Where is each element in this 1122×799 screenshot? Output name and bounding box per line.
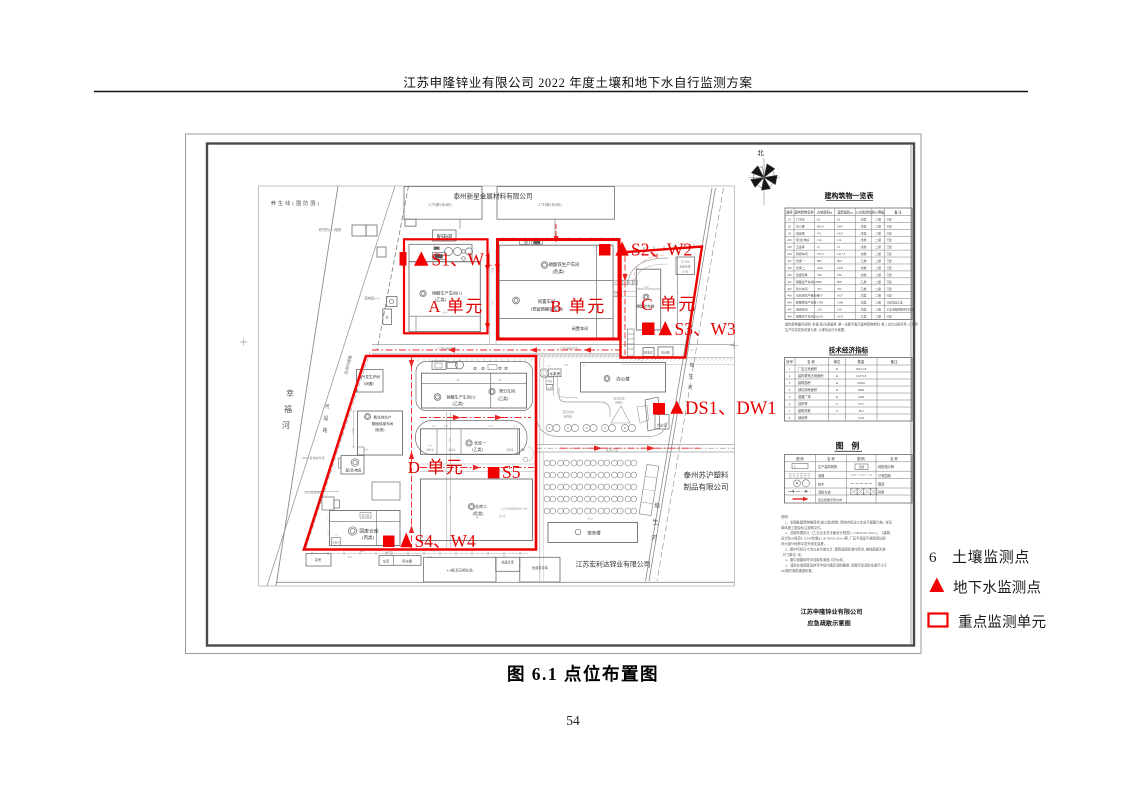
svg-text:1057: 1057 — [837, 294, 844, 298]
svg-text:单体施工图及标注说明文件。: 单体施工图及标注说明文件。 — [781, 525, 824, 530]
svg-text:4.4幢(现五期车间): 4.4幢(现五期车间) — [447, 568, 474, 573]
svg-text:配(变)电房: 配(变)电房 — [346, 468, 362, 473]
svg-text:(危类): (危类) — [375, 427, 385, 432]
svg-text:车库: 车库 — [383, 559, 390, 564]
svg-text:802.4: 802.4 — [817, 224, 824, 228]
svg-text:已建: 已建 — [887, 231, 893, 235]
svg-text:河: 河 — [651, 534, 657, 542]
svg-text:数量: 数量 — [858, 359, 865, 364]
svg-text:建构筑物占地面积: 建构筑物占地面积 — [798, 373, 824, 378]
svg-text:江苏申隆锌业有限公司: 江苏申隆锌业有限公司 — [801, 608, 863, 616]
svg-text:图 例: 图 例 — [836, 441, 863, 451]
svg-text:二级: 二级 — [875, 244, 881, 249]
svg-text:泰州新星金属材料有限公司: 泰州新星金属材料有限公司 — [453, 192, 532, 201]
svg-text:%: % — [836, 402, 839, 406]
svg-text:202: 202 — [787, 238, 792, 242]
svg-text:硝酸生产车间(1): 硝酸生产车间(1) — [432, 290, 463, 297]
svg-text:(乙类): (乙类) — [453, 400, 464, 406]
svg-text:耐火等级: 耐火等级 — [872, 210, 886, 215]
svg-text:114: 114 — [837, 238, 842, 242]
svg-text:辅料: 辅料 — [521, 448, 526, 452]
svg-text:已建: 已建 — [887, 273, 893, 277]
svg-text:占地面积m: 占地面积m — [817, 210, 833, 215]
svg-text:周转库: 周转库 — [506, 448, 514, 452]
svg-text:S4、W4: S4、W4 — [415, 531, 476, 551]
svg-text:福: 福 — [284, 405, 292, 414]
svg-text:960: 960 — [837, 259, 842, 263]
svg-text:2800: 2800 — [858, 388, 865, 392]
svg-text:402: 402 — [787, 287, 792, 291]
svg-text:戊类: 戊类 — [860, 244, 866, 249]
svg-text:32.7: 32.7 — [489, 425, 494, 428]
svg-text:图 6.1 点位布置图: 图 6.1 点位布置图 — [507, 664, 659, 684]
svg-text:磷酸铁生产车间: 磷酸铁生产车间 — [549, 261, 580, 268]
svg-text:B 单元: B 单元 — [550, 297, 606, 316]
svg-text:剩固体废车间: 剩固体废车间 — [372, 421, 394, 426]
svg-text:备注: 备注 — [891, 359, 898, 364]
svg-text:水池: 水池 — [547, 386, 552, 390]
svg-text:1057: 1057 — [817, 294, 824, 298]
svg-text:2.9m: 2.9m — [428, 445, 433, 447]
svg-text:4m宽的消防通道布置。: 4m宽的消防通道布置。 — [781, 568, 815, 573]
svg-text:(乙类): (乙类) — [472, 446, 483, 452]
svg-text:1413: 1413 — [837, 231, 844, 235]
svg-text:幸: 幸 — [286, 389, 294, 398]
svg-text:乙类: 乙类 — [860, 258, 866, 263]
svg-text:1396: 1396 — [817, 301, 824, 305]
svg-text:42.5: 42.5 — [428, 556, 433, 559]
svg-text:应急疏散示意方向: 应急疏散示意方向 — [818, 497, 842, 502]
svg-text:二级: 二级 — [875, 258, 881, 263]
svg-text:355: 355 — [817, 287, 822, 291]
svg-text:配电房: 配电房 — [644, 351, 653, 355]
svg-text:仓库二: 仓库二 — [475, 503, 487, 509]
svg-text:403: 403 — [787, 294, 792, 298]
svg-text:S1、W1: S1、W1 — [432, 250, 493, 270]
svg-text:已建: 已建 — [887, 252, 893, 256]
svg-text:生: 生 — [652, 518, 658, 526]
svg-text:制品有限公司: 制品有限公司 — [684, 482, 729, 492]
svg-text:0.49: 0.49 — [858, 416, 864, 420]
svg-text:配(变)电房: 配(变)电房 — [796, 237, 810, 242]
svg-text:二级: 二级 — [875, 279, 881, 284]
svg-text:796: 796 — [817, 273, 822, 277]
svg-text:2407: 2407 — [837, 224, 844, 228]
svg-text:建筑系数: 建筑系数 — [798, 408, 812, 413]
svg-text:氧化锌生产等车间: 氧化锌生产等车间 — [796, 293, 819, 298]
svg-text:210: 210 — [817, 308, 822, 312]
svg-text:16856: 16856 — [857, 381, 865, 385]
svg-text:21.82: 21.82 — [682, 271, 689, 274]
svg-text:(乙类): (乙类) — [498, 395, 509, 401]
svg-text:重点监测单元: 重点监测单元 — [958, 614, 1046, 631]
svg-text:01: 01 — [788, 217, 792, 221]
svg-text:江苏宏利达锌业有限公司: 江苏宏利达锌业有限公司 — [576, 560, 651, 569]
svg-text:仓库二: 仓库二 — [796, 265, 805, 270]
svg-text:54: 54 — [566, 713, 580, 728]
svg-text:泰州苏沪塑料: 泰州苏沪塑料 — [684, 470, 729, 480]
svg-text:戊类: 戊类 — [860, 293, 866, 298]
svg-text:土壤监测点: 土壤监测点 — [952, 548, 1030, 566]
svg-text:河: 河 — [324, 403, 329, 410]
svg-text:河: 河 — [687, 384, 692, 391]
svg-text:%: % — [836, 409, 839, 413]
svg-text:戊类: 戊类 — [860, 251, 866, 256]
svg-text:配电房(一): 配电房(一) — [365, 296, 380, 301]
svg-text:203: 203 — [787, 245, 792, 249]
svg-text:生活大道: 生活大道 — [606, 447, 618, 452]
svg-text:已建: 已建 — [887, 294, 893, 298]
svg-text:埠: 埠 — [689, 362, 694, 369]
svg-text:危废暂存库: 危废暂存库 — [532, 565, 549, 570]
svg-text:喷泉水池: 喷泉水池 — [613, 397, 624, 401]
svg-text:63: 63 — [837, 217, 841, 221]
svg-text:C 单元: C 单元 — [641, 295, 697, 314]
svg-text:值班楼: 值班楼 — [661, 351, 670, 355]
svg-text:16.5: 16.5 — [448, 496, 451, 501]
svg-text:疏散: 疏散 — [859, 465, 865, 469]
svg-text:03: 03 — [788, 231, 792, 235]
svg-text:名 称: 名 称 — [807, 359, 815, 364]
svg-text:二级: 二级 — [875, 237, 881, 242]
svg-text:63: 63 — [817, 217, 821, 221]
svg-text:1417.5: 1417.5 — [837, 252, 846, 256]
svg-text:10kV高压专线: 10kV高压专线 — [304, 490, 323, 495]
svg-text:戊类: 戊类 — [860, 307, 866, 312]
svg-text:51.2: 51.2 — [587, 517, 593, 521]
svg-text:危废间: 危废间 — [332, 540, 340, 544]
svg-text:51.2: 51.2 — [503, 556, 508, 559]
svg-text:已有围墙: 已有围墙 — [878, 473, 892, 478]
svg-text:S3、W3: S3、W3 — [675, 319, 736, 339]
svg-text:二级: 二级 — [875, 251, 881, 256]
svg-text:闲置车间: 闲置车间 — [796, 307, 808, 312]
svg-text:(丙类): (丙类) — [362, 534, 374, 541]
svg-text:地下水监测点: 地下水监测点 — [953, 580, 1041, 597]
svg-text:A 单元: A 单元 — [428, 297, 484, 316]
svg-text:仓库一: 仓库一 — [474, 440, 486, 446]
svg-text:五金库: 五金库 — [796, 244, 805, 249]
svg-text:796: 796 — [837, 273, 842, 277]
svg-text:疏散指示牌: 疏散指示牌 — [878, 464, 895, 469]
svg-text:已建,拟改乙类: 已建,拟改乙类 — [887, 301, 904, 305]
svg-text:备 注: 备 注 — [894, 210, 902, 215]
svg-text:埠: 埠 — [654, 502, 660, 510]
svg-text:13.5: 13.5 — [491, 300, 494, 305]
svg-text:绿地率: 绿地率 — [798, 415, 808, 420]
svg-text:405: 405 — [787, 308, 792, 312]
svg-text:厂区占地面积: 厂区占地面积 — [798, 366, 818, 371]
svg-text:名 称: 名 称 — [890, 456, 898, 461]
svg-text:建构筑物一览表: 建构筑物一览表 — [825, 191, 875, 200]
svg-text:2400: 2400 — [858, 395, 865, 399]
svg-text:停车棚: 停车棚 — [402, 559, 413, 564]
svg-text:筛分车间: 筛分车间 — [499, 388, 515, 394]
svg-text:已建: 已建 — [887, 259, 893, 263]
svg-text:危废仓库: 危废仓库 — [796, 272, 808, 277]
svg-text:氧化锌生产: 氧化锌生产 — [374, 415, 392, 420]
svg-text:二级: 二级 — [875, 300, 881, 305]
svg-text:二级: 二级 — [875, 314, 881, 319]
svg-text:成品库: 成品库 — [448, 448, 456, 452]
svg-text:围墙: 围墙 — [878, 482, 885, 487]
svg-text:乙类: 乙类 — [860, 286, 866, 291]
svg-text:戊类: 戊类 — [860, 265, 866, 270]
svg-text:4.3: 4.3 — [513, 425, 517, 428]
svg-text:宿舍楼: 宿舍楼 — [796, 230, 805, 235]
svg-text:堤: 堤 — [323, 415, 328, 422]
svg-text:生: 生 — [688, 373, 693, 380]
svg-text:研究所(一)电房: 研究所(一)电房 — [319, 227, 342, 232]
svg-text:高架水塔: 高架水塔 — [679, 265, 690, 269]
svg-text:宿舍楼: 宿舍楼 — [587, 530, 601, 537]
svg-text:养生线(围防围): 养生线(围防围) — [271, 199, 322, 207]
svg-text:已建: 已建 — [887, 217, 893, 221]
svg-text:1396: 1396 — [837, 301, 844, 305]
svg-text:已建: 已建 — [887, 245, 893, 249]
svg-text:筛分车间: 筛分车间 — [796, 286, 808, 291]
svg-text:绿化用地面积: 绿化用地面积 — [798, 387, 818, 392]
svg-text:应急疏散示意图: 应急疏散示意图 — [807, 620, 850, 628]
svg-text:技术经济指标: 技术经济指标 — [829, 346, 869, 355]
svg-text:建筑面积m: 建筑面积m — [837, 210, 853, 215]
svg-text:13-15m: 13-15m — [681, 261, 691, 264]
svg-text:9.3: 9.3 — [432, 425, 436, 428]
svg-text:大门: 大门 — [385, 550, 391, 555]
svg-text:(绿化): (绿化) — [615, 401, 623, 405]
svg-text:31.8: 31.8 — [364, 449, 369, 452]
svg-text:38.2: 38.2 — [858, 409, 864, 413]
svg-text:机修车间: 机修车间 — [796, 251, 808, 256]
svg-text:204: 204 — [787, 252, 792, 256]
svg-text:原料库: 原料库 — [426, 448, 434, 452]
svg-text:戊类: 戊类 — [860, 300, 866, 305]
svg-text:戊类: 戊类 — [860, 223, 866, 228]
svg-text:2220: 2220 — [837, 266, 844, 270]
svg-text:355: 355 — [837, 287, 842, 291]
svg-text:1.2万吨年磷酸铁锂生产线: 1.2万吨年磷酸铁锂生产线 — [500, 507, 528, 511]
svg-text:(闲置): (闲置) — [364, 381, 374, 386]
svg-text:21: 21 — [817, 245, 821, 249]
svg-text:114: 114 — [817, 238, 822, 242]
svg-text:471: 471 — [817, 231, 822, 235]
svg-text:301: 301 — [787, 259, 792, 263]
svg-text:江苏申隆锌业有限公司 2022 年度土壤和地下水自行监测方案: 江苏申隆锌业有限公司 2022 年度土壤和地下水自行监测方案 — [403, 75, 752, 90]
svg-text:戊类: 戊类 — [860, 272, 866, 277]
svg-text:D 单元: D 单元 — [408, 458, 465, 477]
svg-text:30101.8: 30101.8 — [856, 367, 867, 371]
svg-text:办公楼: 办公楼 — [616, 376, 630, 383]
svg-text:401: 401 — [787, 280, 792, 284]
svg-text:02: 02 — [788, 224, 792, 228]
svg-text:容积率: 容积率 — [798, 401, 808, 406]
svg-text:危废仓库: 危废仓库 — [501, 560, 515, 565]
svg-text:34.1: 34.1 — [348, 556, 353, 559]
svg-text:剪力墙: 剪力墙 — [362, 514, 370, 518]
svg-text:DS1、DW1: DS1、DW1 — [685, 399, 776, 419]
svg-text:仓库一: 仓库一 — [796, 258, 805, 263]
svg-text:名 称: 名 称 — [827, 456, 835, 461]
svg-text:花坛水池: 花坛水池 — [562, 410, 573, 414]
svg-text:808: 808 — [817, 280, 822, 284]
svg-text:1632: 1632 — [817, 315, 824, 319]
svg-text:戊类: 戊类 — [860, 237, 866, 242]
svg-text:门卫房: 门卫房 — [796, 216, 805, 221]
svg-text:二级: 二级 — [875, 286, 881, 291]
svg-text:火灾危险性: 火灾危险性 — [856, 210, 873, 215]
svg-text:传达室: 传达室 — [657, 423, 667, 428]
svg-text:302: 302 — [787, 266, 792, 270]
svg-text:二级: 二级 — [875, 265, 881, 270]
svg-text:二级: 二级 — [875, 230, 881, 235]
svg-text:闲置车间: 闲置车间 — [572, 325, 589, 332]
svg-text:编号: 编号 — [786, 210, 792, 215]
svg-text:乙类: 乙类 — [860, 279, 866, 284]
svg-text:6: 6 — [929, 550, 937, 566]
svg-text:办公楼: 办公楼 — [796, 223, 805, 228]
svg-text:硝酸生产车间(1): 硝酸生产车间(1) — [796, 279, 817, 284]
svg-text:泵房: 泵房 — [315, 557, 321, 562]
svg-text:已建: 已建 — [887, 315, 893, 319]
svg-text:硝酸生产车间(2): 硝酸生产车间(2) — [796, 314, 817, 319]
svg-text:树木: 树木 — [818, 482, 825, 487]
svg-text:固废仓库: 固废仓库 — [359, 528, 378, 535]
svg-text:0.57: 0.57 — [858, 402, 864, 406]
svg-text:图 例: 图 例 — [796, 456, 804, 461]
svg-text:北: 北 — [757, 149, 764, 157]
svg-text:已建: 已建 — [887, 287, 893, 291]
svg-text:12475.9: 12475.9 — [856, 374, 867, 378]
svg-text:13.9: 13.9 — [644, 286, 649, 289]
svg-text:序号: 序号 — [786, 359, 793, 364]
svg-text:硝酸生产车间(1): 硝酸生产车间(1) — [447, 394, 476, 400]
svg-text:11.6: 11.6 — [564, 364, 569, 367]
svg-text:消控: 消控 — [547, 379, 552, 383]
svg-text:(危类): (危类) — [553, 268, 565, 275]
svg-text:乙类: 乙类 — [860, 314, 866, 319]
svg-text:图 例: 图 例 — [857, 456, 865, 461]
svg-text:已建: 已建 — [887, 280, 893, 284]
svg-text:303: 303 — [787, 273, 792, 277]
svg-text:1632: 1632 — [837, 315, 844, 319]
svg-text:内大部分地势平坦开阔无高差。: 内大部分地势平坦开阔无高差。 — [781, 541, 827, 546]
svg-text:建筑面积: 建筑面积 — [798, 380, 812, 385]
svg-text:绿化带: 绿化带 — [564, 415, 573, 419]
svg-text:二级: 二级 — [875, 293, 881, 298]
svg-text:二级: 二级 — [875, 216, 881, 221]
svg-text:说明:: 说明: — [781, 514, 789, 519]
svg-text:2、总图布置执行《工业企业总平面设计规范》( GB50187: 2、总图布置执行《工业企业总平面设计规范》( GB50187-2012 )、《建… — [785, 530, 891, 535]
svg-text:472.5: 472.5 — [817, 252, 824, 256]
svg-text:货架: 货架 — [878, 490, 885, 495]
svg-text:808: 808 — [837, 280, 842, 284]
svg-text:30.6: 30.6 — [351, 428, 354, 433]
svg-text:4.7F(第2系4栋): 4.7F(第2系4栋) — [428, 202, 452, 207]
svg-text:煅气发生炉间: 煅气发生炉间 — [358, 374, 380, 379]
svg-text:道路: 道路 — [818, 473, 825, 478]
svg-text:13.7: 13.7 — [444, 425, 449, 428]
svg-text:建构筑物名称: 建构筑物名称 — [794, 210, 814, 215]
svg-text:S5: S5 — [502, 462, 521, 482]
svg-text:河: 河 — [282, 420, 290, 430]
svg-text:406: 406 — [787, 315, 792, 319]
svg-text:磷酸铁生产车间: 磷酸铁生产车间 — [796, 300, 816, 305]
svg-text:404: 404 — [787, 301, 792, 305]
svg-text:路: 路 — [322, 427, 327, 434]
svg-text:二级: 二级 — [875, 223, 881, 228]
svg-text:已建: 已建 — [887, 224, 893, 228]
svg-text:(危类): (危类) — [473, 510, 484, 516]
svg-text:生产建构筑物: 生产建构筑物 — [818, 464, 838, 469]
svg-text:已建: 已建 — [887, 266, 893, 270]
svg-text:戊类: 戊类 — [860, 216, 866, 221]
svg-text:S2、W2: S2、W2 — [631, 240, 692, 260]
svg-text:戊类: 戊类 — [860, 230, 866, 235]
svg-text:道路广场: 道路广场 — [798, 394, 811, 399]
svg-text:单位: 单位 — [834, 359, 841, 364]
svg-text:水泵房: 水泵房 — [549, 371, 560, 376]
svg-text:已建: 已建 — [887, 238, 893, 242]
svg-text:100kV变电站专线: 100kV变电站专线 — [301, 455, 324, 460]
svg-text:4.7F(第2系4栋): 4.7F(第2系4栋) — [538, 202, 562, 207]
svg-text:二级: 二级 — [875, 272, 881, 277]
svg-text:消防车道: 消防车道 — [818, 490, 832, 495]
svg-text:2220: 2220 — [817, 266, 824, 270]
svg-text:21: 21 — [837, 245, 841, 249]
svg-text:210: 210 — [837, 308, 842, 312]
svg-text:800: 800 — [817, 259, 822, 263]
svg-text:二级: 二级 — [875, 307, 881, 312]
